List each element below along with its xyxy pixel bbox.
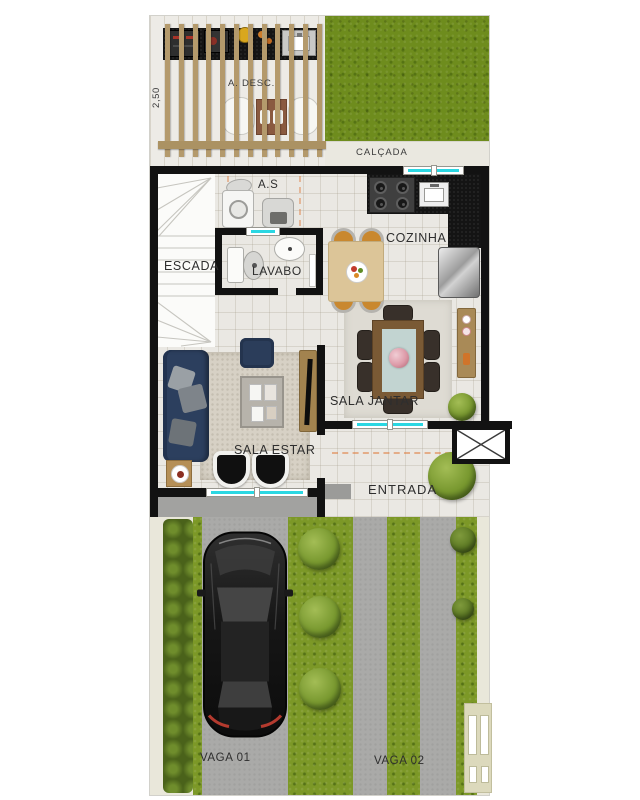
parking2-label: VAGA 02 — [374, 755, 425, 767]
grass-strip — [387, 517, 420, 795]
pergola-slat — [206, 24, 211, 157]
kitchen-sink-icon — [419, 182, 449, 207]
floor-plan: 2,50 A. DESC. CALÇADA A.S ESCADA LAVABO … — [0, 0, 640, 800]
laundry-tub-icon — [262, 198, 294, 228]
pergola-slat — [289, 24, 294, 157]
pergola-slat — [193, 24, 198, 157]
pergola-slat — [317, 24, 322, 157]
wall — [296, 288, 323, 295]
breakfast-table — [328, 241, 384, 302]
shrub-icon — [298, 528, 340, 570]
wall — [481, 166, 489, 432]
plant-icon — [448, 393, 476, 421]
dimension-label: 2,50 — [151, 87, 162, 108]
parking-track-2 — [420, 517, 456, 795]
dining-chair — [423, 362, 440, 392]
shrub-icon — [450, 527, 476, 553]
washbasin-icon — [274, 237, 305, 261]
service-area-label: A.S — [258, 179, 278, 191]
shrub-icon — [452, 598, 474, 620]
stove-icon — [369, 177, 415, 213]
parking1-label: VAGA 01 — [200, 752, 251, 764]
washing-machine-icon — [222, 190, 254, 228]
pergola-rail — [158, 141, 326, 149]
pillow — [168, 418, 197, 447]
projection-line — [299, 176, 301, 226]
wall — [317, 478, 325, 517]
pergola-slat — [303, 24, 308, 157]
car-top-view — [197, 529, 293, 740]
dining-table — [372, 320, 424, 399]
toilet-tank-icon — [227, 247, 244, 283]
coffee-table — [240, 376, 284, 428]
stairs-label: ESCADA — [164, 259, 219, 273]
sideboard — [457, 308, 476, 378]
deck-table — [256, 99, 287, 135]
pergola-slat — [220, 24, 225, 157]
entry-step — [323, 484, 351, 499]
shrub-icon — [299, 668, 341, 710]
front-lawn — [325, 16, 489, 141]
pergola-slat — [234, 24, 239, 157]
pergola-slat — [248, 24, 253, 157]
pergola-slat — [262, 24, 267, 157]
deck-sink-icon — [282, 30, 316, 56]
ottoman — [240, 338, 274, 368]
pergola-slat — [165, 24, 170, 157]
entrance-label: ENTRADA — [368, 482, 437, 497]
kitchen-window — [403, 166, 464, 175]
kitchen-counter-side — [448, 174, 482, 248]
dining-label: SALA JANTAR — [330, 394, 419, 408]
hedge — [163, 519, 193, 793]
dining-window — [352, 420, 428, 429]
living-label: SALA ESTAR — [234, 443, 316, 457]
tv-console — [299, 350, 317, 432]
fridge-icon — [438, 247, 480, 298]
driveway-track — [353, 517, 387, 795]
living-window — [206, 488, 308, 497]
deck-label: A. DESC. — [228, 78, 275, 89]
dining-chair — [423, 330, 440, 360]
wall — [150, 166, 158, 517]
toilet-label: LAVABO — [252, 264, 302, 278]
wall — [215, 288, 278, 295]
door-leaf — [309, 254, 316, 287]
pergola-slat — [275, 24, 280, 157]
kitchen-label: COZINHA — [386, 231, 446, 245]
shaft-box — [452, 425, 510, 464]
pergola-slat — [179, 24, 184, 157]
shrub-icon — [299, 596, 341, 638]
sidewalk-label: CALÇADA — [356, 147, 408, 158]
gate-structure — [464, 703, 492, 793]
side-patio — [157, 497, 325, 517]
wall — [316, 228, 323, 295]
lavabo-window — [246, 227, 280, 236]
side-table — [166, 460, 192, 487]
